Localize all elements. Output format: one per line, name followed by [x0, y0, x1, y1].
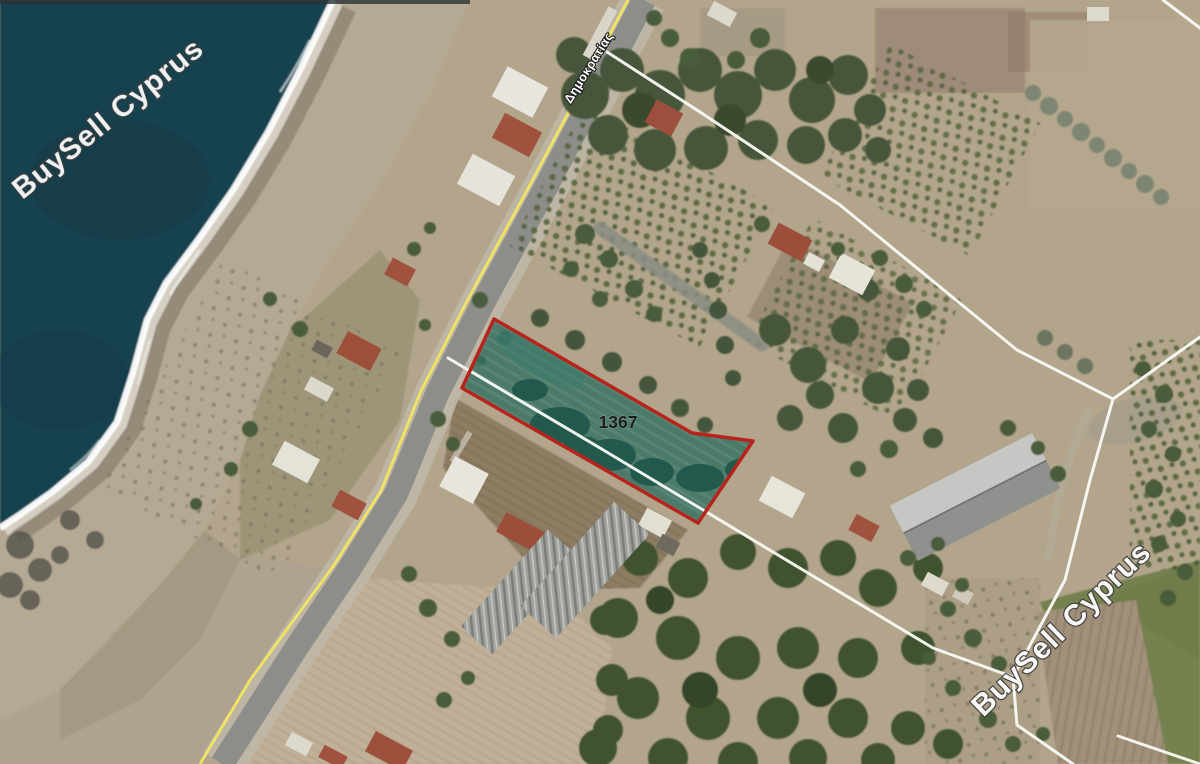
- map-canvas: 1367 Δημοκρατίας BuySell Cyprus BuySell …: [0, 0, 1200, 764]
- parcel-id-label: 1367: [599, 412, 638, 432]
- building-white-roof: [1087, 7, 1109, 21]
- satellite-map: 1367 Δημοκρατίας BuySell Cyprus BuySell …: [0, 0, 1200, 764]
- image-edge-artifact: [0, 0, 470, 4]
